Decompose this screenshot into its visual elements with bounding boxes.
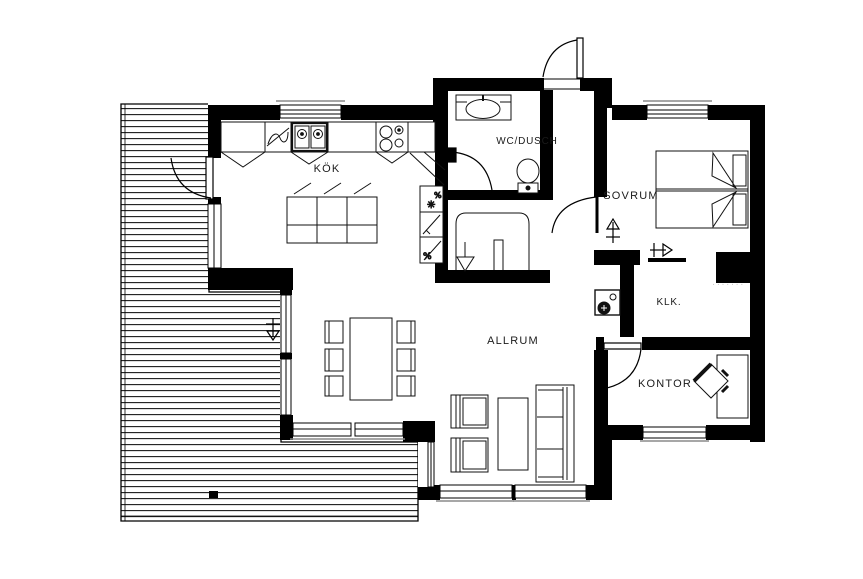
washbasin-icon [456, 95, 511, 120]
washer-icon: ✳ [427, 200, 435, 211]
label-wc: WC/DUSCH [496, 136, 557, 147]
allrum-west-window-2 [281, 359, 291, 415]
laundry-column: ✳ % % [420, 186, 443, 263]
sofa [536, 385, 574, 482]
armchair-2 [451, 438, 488, 472]
shaft [716, 252, 750, 283]
percent-icon-1: % [434, 191, 442, 200]
allrum-south-window-2 [352, 423, 405, 439]
deck-post [209, 491, 218, 498]
allrum-south-window-1 [290, 423, 353, 439]
armchair-1 [451, 395, 488, 428]
water-heater-icon [595, 290, 620, 315]
faint-stamp: ······· [711, 281, 744, 289]
dining-table [350, 318, 392, 400]
percent-icon-2: % [423, 252, 432, 262]
label-allrum: ALLRUM [487, 335, 539, 347]
allrum-west-window-1 [281, 295, 291, 353]
coffee-table [498, 398, 528, 470]
lower-west-window [428, 442, 434, 487]
label-sovrum: SOVRUM [603, 190, 658, 202]
klk-fixtures [595, 290, 620, 315]
double-bed [656, 151, 748, 228]
klk-threshold [648, 258, 686, 262]
floor-plan-drawing: ✳ % % [0, 0, 863, 579]
label-kok: KÖK [314, 163, 341, 175]
floor-plan-page: ✳ % % [0, 0, 863, 579]
label-klk: KLK. [657, 297, 682, 308]
label-kontor: KONTOR [638, 378, 692, 390]
kitchen-west-window [208, 204, 221, 268]
